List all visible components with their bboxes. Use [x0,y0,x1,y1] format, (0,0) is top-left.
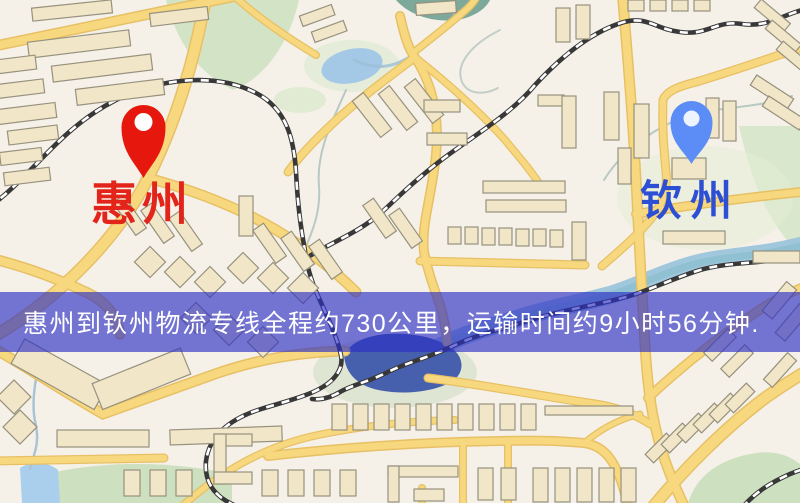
map-pin-glyph [666,100,717,166]
origin-pin-icon[interactable] [116,100,171,180]
origin-city-label: 惠州 [91,182,193,228]
map-pin-glyph [116,100,171,180]
destination-pin-icon[interactable] [666,100,717,166]
route-info-banner: 惠州到钦州物流专线全程约730公里，运输时间约9小时56分钟. [0,292,800,352]
route-info-text: 惠州到钦州物流专线全程约730公里，运输时间约9小时56分钟. [0,304,760,340]
map-canvas [0,0,800,503]
map-screenshot: 惠州 钦州 惠州到钦州物流专线全程约730公里，运输时间约9小时56分钟. [0,0,800,503]
destination-city-label: 钦州 [640,181,740,223]
